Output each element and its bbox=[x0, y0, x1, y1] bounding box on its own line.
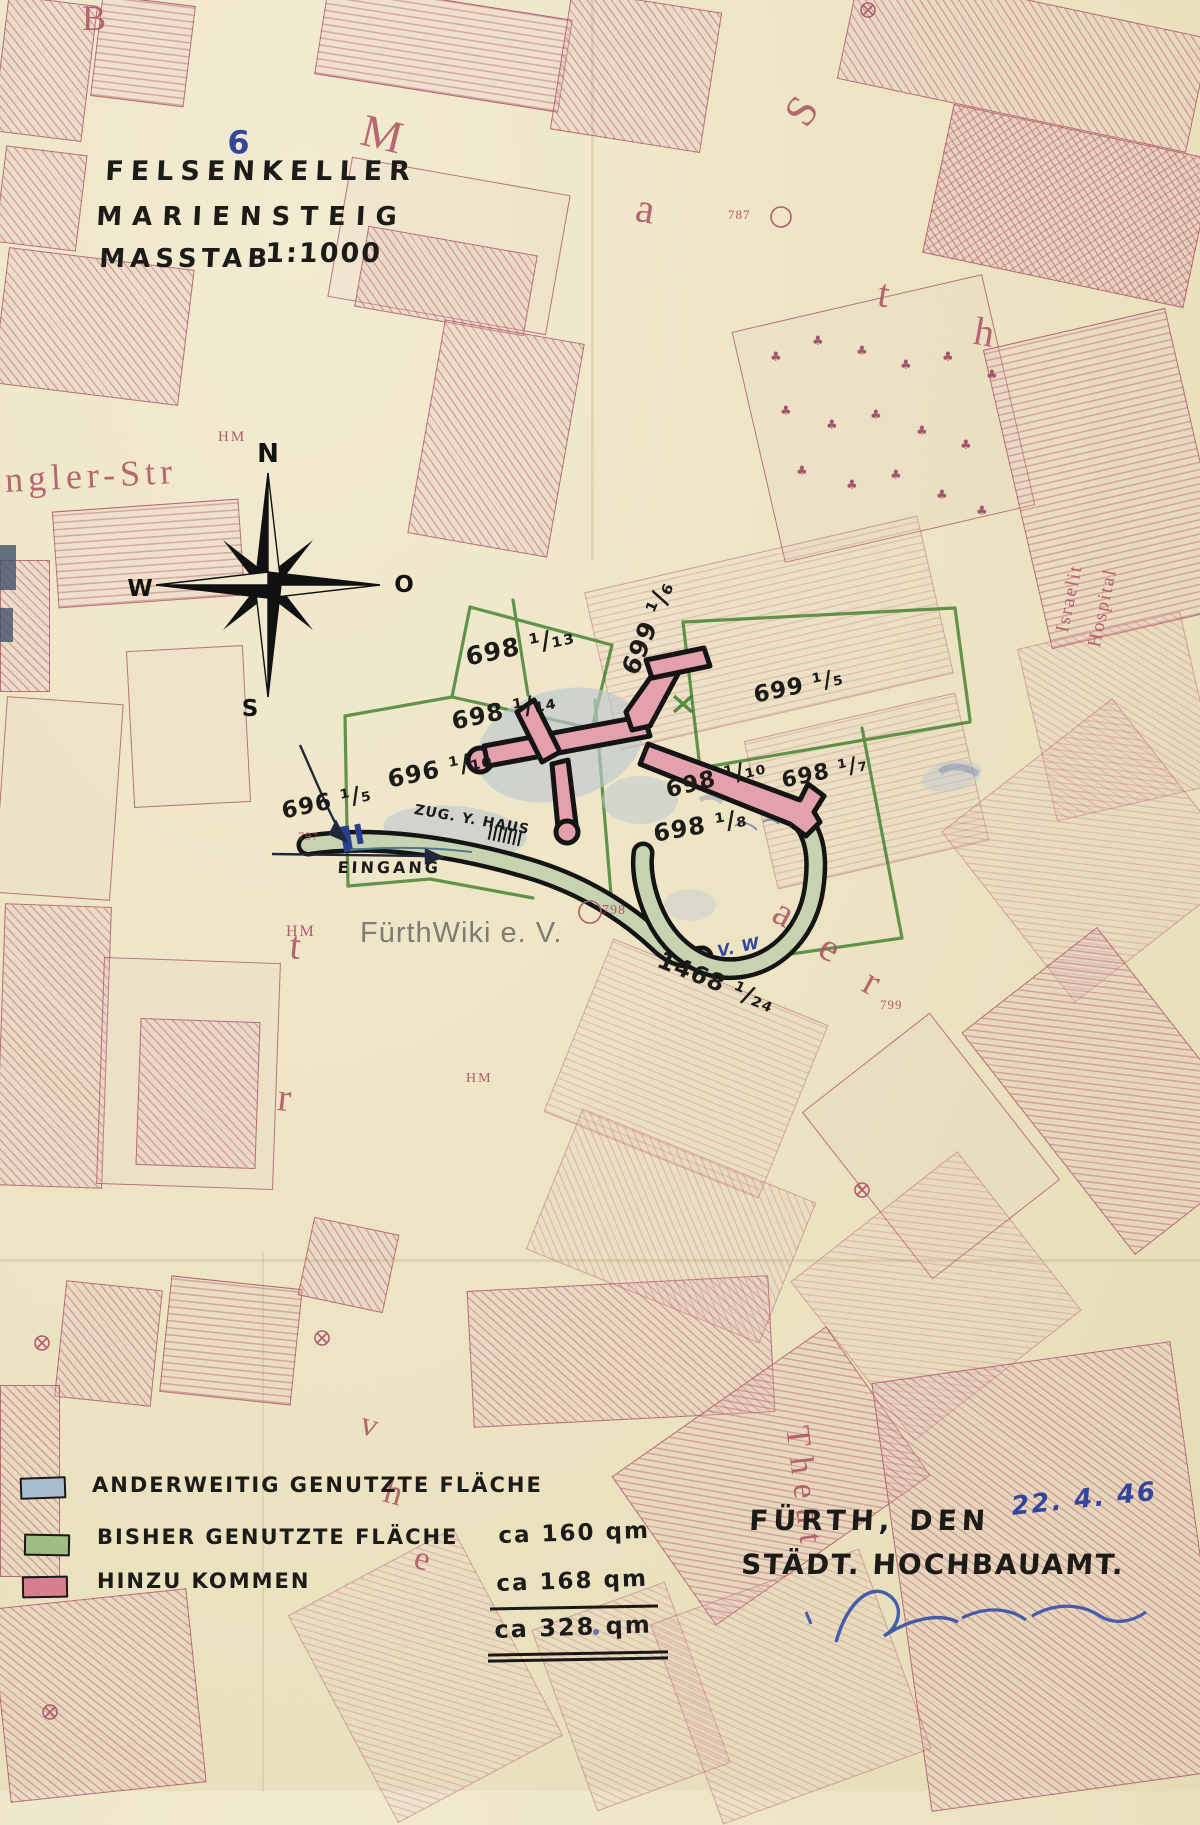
label-scale: 1:1000 bbox=[265, 240, 383, 268]
green-x-mark bbox=[674, 696, 692, 712]
legend-swatch-anderweitig bbox=[20, 1476, 67, 1500]
label-num-797: 797 bbox=[298, 830, 319, 843]
compass-label-w: W bbox=[127, 576, 152, 602]
legend-label-bisher: BISHER GENUTZTE FLÄCHE bbox=[97, 1526, 458, 1548]
legend-swatch-bisher bbox=[24, 1534, 70, 1557]
legend-amount-hinzu: ca 168 qm bbox=[496, 1567, 648, 1596]
label-title1: FELSENKELLER bbox=[105, 158, 418, 186]
compass-label-n: N bbox=[257, 439, 279, 469]
label-eingang: EINGANG bbox=[337, 860, 441, 877]
label-s-B: B bbox=[82, 0, 106, 38]
legend-total-amount: ca 328 qm bbox=[494, 1613, 652, 1644]
legend-label-hinzu: HINZU KOMMEN bbox=[97, 1570, 310, 1592]
label-title2: MARIENSTEIG bbox=[96, 204, 408, 231]
label-num-787: 787 bbox=[728, 208, 751, 222]
legend-label-anderweitig: ANDERWEITIG GENUTZTE FLÄCHE bbox=[92, 1474, 543, 1496]
label-num-799: 799 bbox=[880, 998, 903, 1012]
legend-swatch-hinzu bbox=[22, 1576, 68, 1599]
compass-main-points bbox=[156, 473, 380, 697]
scanned-map-page: { "document": { "type": "historical cada… bbox=[0, 0, 1200, 1791]
signature-stroke bbox=[593, 1591, 1146, 1642]
label-masstab: MASSTAB bbox=[99, 246, 273, 273]
label-watermark: FürthWiki e. V. bbox=[360, 918, 562, 948]
label-num-798: 798 bbox=[602, 904, 626, 919]
map-canvas: N W O S 6FELSENKELLERMARIENSTEIGMASSTAB1… bbox=[0, 0, 1200, 1791]
compass-label-s: S bbox=[242, 696, 259, 722]
compass-label-o: O bbox=[394, 572, 414, 598]
label-hochbauamt: STÄDT. HOCHBAUAMT. bbox=[740, 1550, 1125, 1579]
legend-amount-bisher: ca 160 qm bbox=[498, 1519, 650, 1548]
label-hm3: HM bbox=[466, 1072, 493, 1087]
label-hm1: HM bbox=[218, 430, 246, 446]
label-fuerth: FÜRTH, DEN bbox=[748, 1506, 990, 1535]
label-hm2: HM bbox=[286, 924, 316, 941]
